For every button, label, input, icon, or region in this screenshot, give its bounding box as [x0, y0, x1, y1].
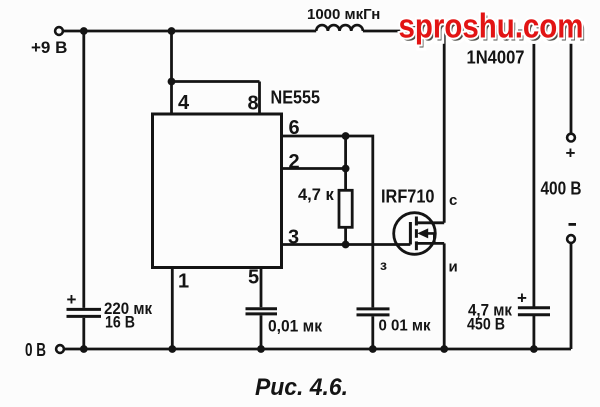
svg-text:и: и: [449, 259, 458, 276]
svg-text:IRF710: IRF710: [381, 187, 435, 207]
svg-text:16 В: 16 В: [105, 314, 135, 332]
svg-text:3: 3: [288, 227, 299, 249]
svg-text:с: с: [449, 192, 457, 209]
svg-text:450 В: 450 В: [467, 316, 505, 334]
svg-text:+9 В: +9 В: [31, 38, 67, 57]
svg-text:0,01 мк: 0,01 мк: [268, 318, 323, 336]
svg-text:8: 8: [248, 93, 259, 115]
svg-text:Рис. 4.6.: Рис. 4.6.: [255, 374, 348, 401]
svg-text:0 В: 0 В: [25, 340, 46, 360]
svg-text:NE555: NE555: [271, 88, 321, 108]
svg-text:1: 1: [178, 271, 189, 293]
svg-text:0 01 мк: 0 01 мк: [379, 318, 432, 335]
svg-text:1000 мкГн: 1000 мкГн: [307, 6, 380, 23]
svg-text:з: з: [380, 257, 387, 273]
svg-text:5: 5: [248, 267, 259, 289]
svg-text:4,7 к: 4,7 к: [298, 186, 335, 204]
svg-text:1N4007: 1N4007: [467, 48, 525, 68]
svg-text:4: 4: [178, 92, 190, 114]
svg-text:2: 2: [289, 151, 300, 173]
svg-text:400 В: 400 В: [541, 179, 582, 199]
svg-text:sproshu.com: sproshu.com: [399, 8, 584, 46]
svg-text:6: 6: [289, 117, 300, 139]
svg-text:+: +: [67, 290, 77, 309]
svg-text:+: +: [566, 144, 576, 163]
svg-text:+: +: [517, 289, 527, 308]
